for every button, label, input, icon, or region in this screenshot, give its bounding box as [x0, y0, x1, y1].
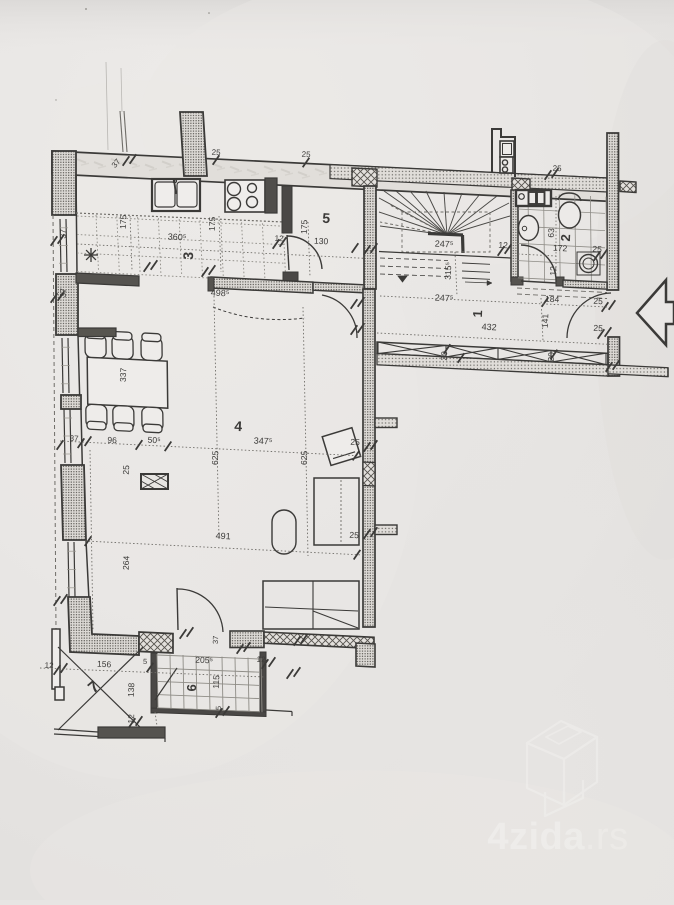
svg-text:25: 25 — [552, 164, 562, 173]
svg-text:12: 12 — [44, 661, 54, 670]
svg-text:25: 25 — [211, 148, 221, 157]
svg-text:12: 12 — [498, 240, 508, 250]
svg-text:491: 491 — [215, 531, 231, 542]
svg-text:25: 25 — [349, 530, 359, 540]
svg-text:247⁵: 247⁵ — [435, 239, 454, 250]
svg-text:432: 432 — [481, 322, 497, 333]
svg-text:20: 20 — [439, 351, 449, 361]
svg-text:205⁵: 205⁵ — [195, 655, 213, 666]
svg-text:172: 172 — [553, 243, 568, 254]
svg-text:4: 4 — [234, 418, 243, 434]
svg-text:12: 12 — [548, 266, 558, 276]
svg-text:50⁵: 50⁵ — [147, 435, 160, 446]
svg-text:25: 25 — [350, 437, 360, 447]
svg-text:5: 5 — [214, 706, 223, 711]
svg-text:347⁵: 347⁵ — [254, 436, 273, 447]
svg-text:5: 5 — [143, 657, 148, 666]
svg-text:247⁵: 247⁵ — [435, 293, 454, 304]
svg-text:37: 37 — [69, 434, 79, 443]
svg-text:37: 37 — [58, 229, 68, 239]
svg-text:96: 96 — [107, 435, 117, 445]
svg-text:25: 25 — [593, 323, 603, 333]
svg-text:141: 141 — [540, 313, 551, 328]
svg-text:63: 63 — [546, 228, 556, 238]
svg-text:5: 5 — [322, 210, 331, 226]
svg-text:12: 12 — [126, 714, 136, 724]
svg-text:498⁵: 498⁵ — [211, 288, 230, 299]
svg-text:25: 25 — [593, 296, 603, 306]
svg-text:4zida.rs: 4zida.rs — [487, 816, 628, 858]
svg-text:3: 3 — [180, 251, 196, 260]
svg-text:1: 1 — [470, 310, 485, 318]
svg-text:20: 20 — [546, 352, 556, 362]
svg-text:625: 625 — [210, 450, 221, 465]
svg-text:2: 2 — [558, 234, 573, 242]
svg-text:156: 156 — [97, 659, 112, 670]
svg-text:130: 130 — [314, 236, 329, 247]
svg-text:25: 25 — [592, 244, 602, 254]
svg-text:184: 184 — [545, 294, 560, 305]
svg-text:25: 25 — [301, 150, 311, 159]
svg-text:138: 138 — [126, 682, 137, 697]
svg-text:37: 37 — [58, 288, 68, 298]
svg-text:315⁵: 315⁵ — [443, 262, 454, 280]
svg-text:12: 12 — [274, 234, 284, 243]
svg-text:25: 25 — [121, 465, 131, 475]
svg-text:337: 337 — [118, 367, 129, 382]
svg-text:115: 115 — [211, 675, 222, 689]
svg-text:264: 264 — [121, 555, 132, 570]
svg-text:625: 625 — [299, 450, 310, 465]
svg-text:175: 175 — [118, 214, 129, 229]
svg-text:12: 12 — [256, 655, 266, 664]
svg-text:6: 6 — [184, 684, 199, 692]
svg-text:175: 175 — [207, 216, 218, 231]
svg-text:37: 37 — [211, 636, 220, 645]
svg-text:360⁵: 360⁵ — [168, 232, 187, 243]
